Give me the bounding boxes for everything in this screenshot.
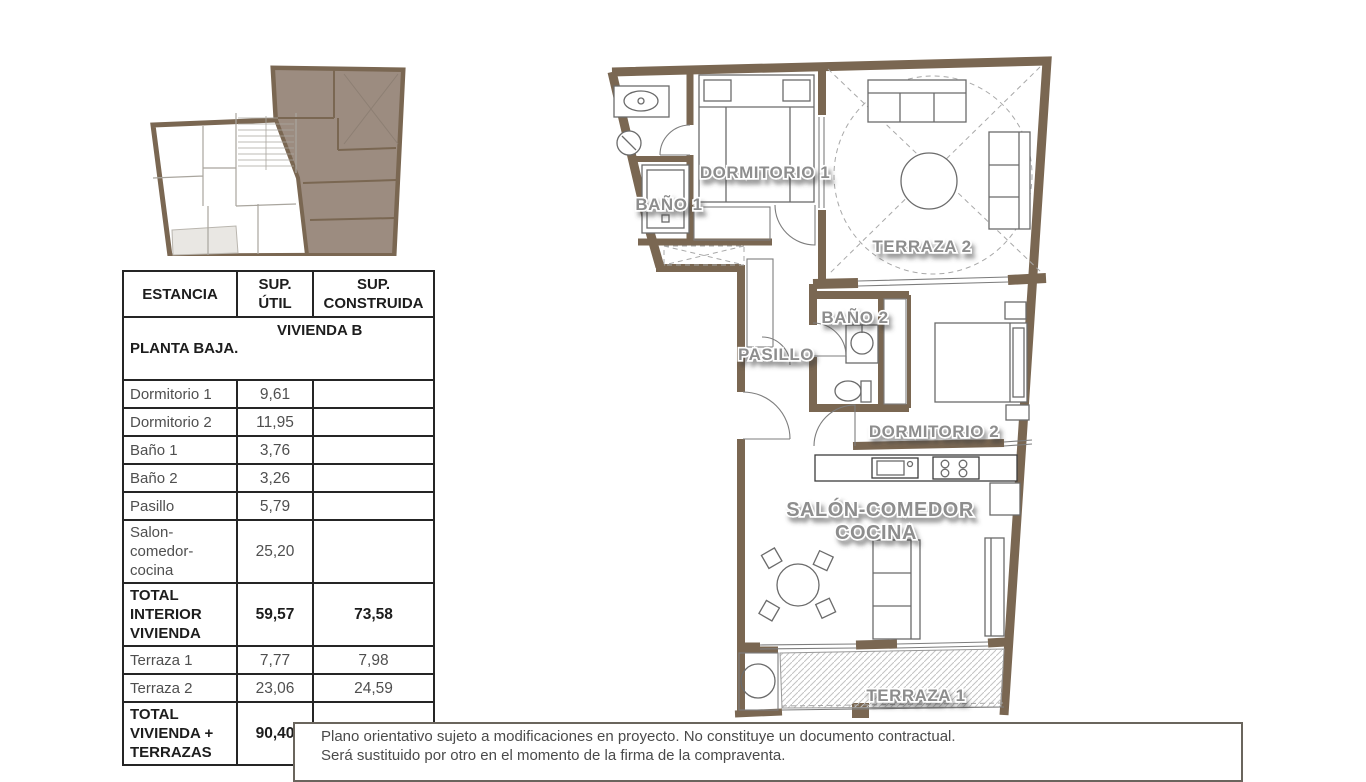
table-row: Terraza 1 7,77 7,98: [123, 646, 434, 674]
label-terraza2: TERRAZA 2: [872, 237, 971, 256]
label-bano1: BAÑO 1: [635, 194, 702, 214]
overview-key-plan: [148, 58, 410, 261]
floorplan-sheet: { "colors":{ "wall_brown":"#7a6752", "un…: [0, 0, 1366, 768]
label-salon-comedor: SALÓN-COMEDOR: [786, 497, 974, 521]
label-cocina: COCINA: [835, 522, 917, 544]
disclaimer-line-1: Plano orientativo sujeto a modificacione…: [321, 727, 1231, 746]
section-planta-baja: PLANTA BAJA.: [130, 340, 238, 357]
col-header-sup-util: SUP. ÚTIL: [237, 271, 313, 317]
row-name: TOTAL INTERIOR VIVIENDA: [123, 583, 237, 646]
table-row: Baño 2 3,26: [123, 464, 434, 492]
terraza2-table: [901, 153, 957, 209]
row-construida: [313, 408, 434, 436]
row-util: 3,26: [237, 464, 313, 492]
salon-furniture: [759, 538, 1004, 639]
disclaimer-line-2: Será sustituido por otro en el momento d…: [321, 746, 1231, 765]
chair: [813, 551, 833, 571]
dining-table: [777, 564, 819, 606]
door-bano2: [813, 323, 846, 356]
row-name: Dormitorio 2: [123, 408, 237, 436]
dormitorio1-furniture: [694, 75, 814, 240]
wardrobe-pasillo: [747, 259, 773, 347]
label-dormitorio2: DORMITORIO 2: [869, 422, 999, 441]
label-terraza1: TERRAZA 1: [866, 686, 965, 705]
row-construida: [313, 380, 434, 408]
storage-and-hall: [664, 246, 773, 347]
row-construida: [313, 492, 434, 520]
table-total-interior-row: TOTAL INTERIOR VIVIENDA 59,57 73,58: [123, 583, 434, 646]
col-header-sup-construida: SUP. CONSTRUIDA: [313, 271, 434, 317]
col-header-estancia: ESTANCIA: [123, 271, 237, 317]
row-util: 5,79: [237, 492, 313, 520]
kitchen-hob: [933, 457, 979, 479]
door-bano1: [660, 125, 690, 155]
table-section-row: PLANTA BAJA. VIVIENDA B: [123, 317, 434, 380]
section-vivienda-b: VIVIENDA B: [277, 321, 362, 340]
row-construida: 24,59: [313, 674, 434, 702]
label-dormitorio1: DORMITORIO 1: [700, 163, 830, 182]
terraza2-sofa-top: [868, 80, 966, 122]
row-util: 11,95: [237, 408, 313, 436]
row-util: 9,61: [237, 380, 313, 408]
apartment-plan: BAÑO 1 DORMITORIO 1 TERRAZA 2 BAÑO 2 PAS…: [600, 50, 1070, 730]
row-construida: [313, 520, 434, 583]
row-util: 59,57: [237, 583, 313, 646]
row-construida: [313, 464, 434, 492]
disclaimer-box: Plano orientativo sujeto a modificacione…: [293, 722, 1243, 782]
row-name: Terraza 1: [123, 646, 237, 674]
section-cell: PLANTA BAJA. VIVIENDA B: [123, 317, 434, 380]
door-entrada: [743, 392, 790, 439]
fridge: [990, 483, 1020, 515]
terraza2-sofa-right: [989, 132, 1030, 229]
table-header-row: ESTANCIA SUP. ÚTIL SUP. CONSTRUIDA: [123, 271, 434, 317]
table-row: Baño 1 3,76: [123, 436, 434, 464]
chair: [761, 548, 781, 568]
toilet-2: [835, 381, 861, 401]
bed-1: [699, 75, 814, 202]
door-dormitorio1: [775, 205, 815, 245]
row-name: Terraza 2: [123, 674, 237, 702]
table-row: Pasillo 5,79: [123, 492, 434, 520]
row-name: Dormitorio 1: [123, 380, 237, 408]
row-util: 7,77: [237, 646, 313, 674]
row-util: 23,06: [237, 674, 313, 702]
apartment-plan-drawing: BAÑO 1 DORMITORIO 1 TERRAZA 2 BAÑO 2 PAS…: [600, 50, 1070, 725]
terraza1-circle: [741, 664, 775, 698]
chair: [759, 600, 779, 620]
table-row: Dormitorio 2 11,95: [123, 408, 434, 436]
nightstand: [1006, 405, 1029, 420]
table-row: Salon- comedor- cocina 25,20: [123, 520, 434, 583]
row-name: Baño 2: [123, 464, 237, 492]
overview-key-plan-drawing: [148, 58, 410, 256]
label-pasillo: PASILLO: [738, 345, 814, 364]
table-row: Terraza 2 23,06 24,59: [123, 674, 434, 702]
row-name: Pasillo: [123, 492, 237, 520]
row-util: 3,76: [237, 436, 313, 464]
chair: [816, 598, 836, 618]
table-row: Dormitorio 1 9,61: [123, 380, 434, 408]
label-bano2: BAÑO 2: [821, 307, 888, 327]
row-util: 25,20: [237, 520, 313, 583]
row-name: TOTAL VIVIENDA + TERRAZAS: [123, 702, 237, 765]
overview-terrace: [172, 226, 238, 255]
dormitorio2-furniture: [935, 302, 1029, 420]
salon-sofa: [873, 540, 920, 639]
row-name: Baño 1: [123, 436, 237, 464]
wardrobe-dormitorio1: [694, 207, 770, 240]
sideboard: [985, 538, 1004, 636]
row-name: Salon- comedor- cocina: [123, 520, 237, 583]
row-construida: [313, 436, 434, 464]
nightstand: [1005, 302, 1026, 319]
row-construida: 7,98: [313, 646, 434, 674]
row-construida: 73,58: [313, 583, 434, 646]
surface-area-table: ESTANCIA SUP. ÚTIL SUP. CONSTRUIDA PLANT…: [122, 270, 435, 766]
